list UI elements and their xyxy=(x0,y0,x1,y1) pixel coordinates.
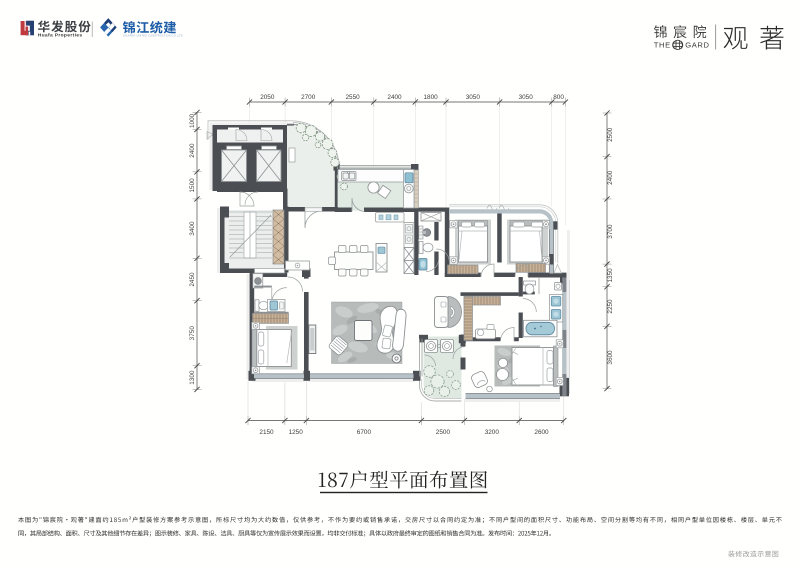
svg-text:1300: 1300 xyxy=(189,370,196,385)
svg-text:6700: 6700 xyxy=(357,429,372,436)
svg-text:2500: 2500 xyxy=(607,127,614,142)
svg-text:2500: 2500 xyxy=(436,429,451,436)
svg-text:1250: 1250 xyxy=(289,429,304,436)
svg-text:GARD: GARD xyxy=(685,41,709,50)
svg-text:THE: THE xyxy=(654,41,671,50)
svg-text:3400: 3400 xyxy=(189,221,196,236)
svg-text:2400: 2400 xyxy=(189,143,196,158)
svg-text:800: 800 xyxy=(553,94,564,101)
svg-text:3700: 3700 xyxy=(607,224,614,239)
svg-text:2550: 2550 xyxy=(345,94,360,101)
svg-text:2050: 2050 xyxy=(260,94,275,101)
svg-text:2400: 2400 xyxy=(387,94,402,101)
svg-text:2700: 2700 xyxy=(301,94,316,101)
svg-text:JINJIANG UNITED CONSTRUCTION C: JINJIANG UNITED CONSTRUCTION CO.,LTD xyxy=(123,33,183,37)
svg-text:2400: 2400 xyxy=(607,170,614,185)
svg-text:2150: 2150 xyxy=(259,429,274,436)
svg-text:3050: 3050 xyxy=(466,94,481,101)
svg-text:3200: 3200 xyxy=(485,429,500,436)
svg-text:2600: 2600 xyxy=(534,429,549,436)
svg-text:3600: 3600 xyxy=(607,350,614,365)
svg-text:3750: 3750 xyxy=(189,326,196,341)
svg-text:1500: 1500 xyxy=(189,178,196,193)
svg-text:2250: 2250 xyxy=(607,299,614,314)
svg-text:1000: 1000 xyxy=(189,113,196,128)
svg-text:Huafa Properties: Huafa Properties xyxy=(38,32,83,38)
svg-text:2450: 2450 xyxy=(189,272,196,287)
svg-text:1800: 1800 xyxy=(423,94,438,101)
svg-text:3050: 3050 xyxy=(519,94,534,101)
svg-text:1350: 1350 xyxy=(607,268,614,283)
